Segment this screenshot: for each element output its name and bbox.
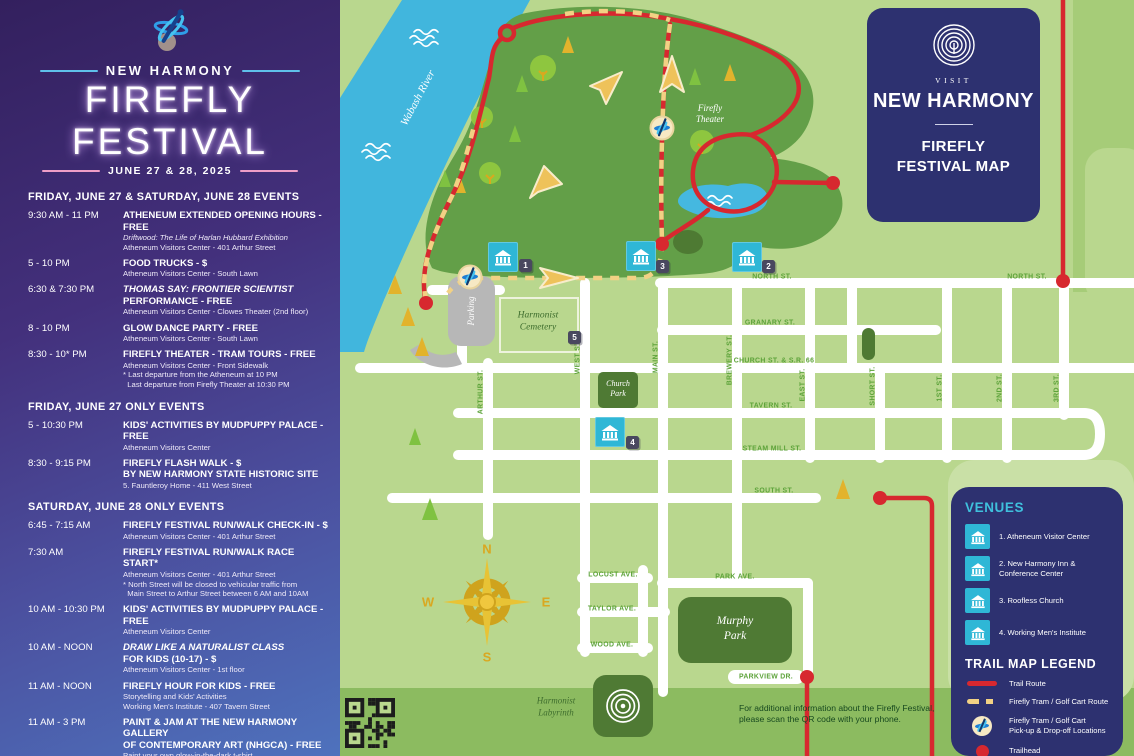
event-body: FIREFLY THEATER - TRAM TOURS - FREEAthen… <box>123 349 330 389</box>
festival-map: NORTH ST.NORTH ST.GRANARY ST.CHURCH ST. … <box>340 0 1134 756</box>
event-time: 8:30 - 9:15 PM <box>28 458 123 491</box>
visit-new-harmony-badge: VISIT NEW HARMONY FIREFLY FESTIVAL MAP <box>867 8 1040 222</box>
venue-list-item: 4. Working Men's Institute <box>965 620 1109 645</box>
legend-label-line: Firefly Tram / Golf Cart <box>1009 716 1106 726</box>
venue-list-label: 2. New Harmony Inn & Conference Center <box>999 559 1109 579</box>
street-label-2nd-st-: 2ND ST. <box>997 374 1004 402</box>
event-body: FIREFLY HOUR FOR KIDS - FREEStorytelling… <box>123 681 330 712</box>
street-label-tavern-st-: TAVERN ST. <box>750 403 793 410</box>
event-body: FIREFLY FESTIVAL RUN/WALK RACE START*Ath… <box>123 547 330 599</box>
event-detail: Atheneum Visitors Center <box>123 443 330 453</box>
event-detail: Paint your own glow-in-the-dark t-shirt <box>123 751 330 756</box>
divider <box>42 170 100 172</box>
legend-trail-icon <box>965 681 999 686</box>
event-time: 9:30 AM - 11 PM <box>28 210 123 252</box>
murphy-park-label: MurphyPark <box>717 614 753 644</box>
venue-list-item: 1. Atheneum Visitor Center <box>965 524 1109 549</box>
event-time: 8 - 10 PM <box>28 323 123 344</box>
venues-legend-panel: VENUES 1. Atheneum Visitor Center2. New … <box>951 487 1123 756</box>
event-row: 11 AM - NOONFIREFLY HOUR FOR KIDS - FREE… <box>28 681 330 712</box>
event-title: GLOW DANCE PARTY - FREE <box>123 323 330 335</box>
street-label-3rd-st-: 3RD ST. <box>1054 374 1061 402</box>
trailhead-swatch <box>976 745 989 756</box>
venue-1-icon <box>488 242 518 272</box>
venue-4-icon <box>595 417 625 447</box>
event-row: 6:45 - 7:15 AMFIREFLY FESTIVAL RUN/WALK … <box>28 520 330 541</box>
legend-label-line: Trail Route <box>1009 679 1046 689</box>
event-detail: Atheneum Visitors Center - 401 Arthur St… <box>123 243 330 253</box>
qr-instructions: For additional information about the Fir… <box>739 703 939 725</box>
firefly-theater-label: FireflyTheater <box>696 103 724 126</box>
legend-label: Trail Route <box>1009 679 1046 689</box>
venue-building-icon <box>965 588 990 613</box>
legend-item-tram: Firefly Tram / Golf Cart Route <box>965 697 1109 707</box>
legend-label-line: Trailhead <box>1009 746 1040 756</box>
event-row: 5 - 10 PMFOOD TRUCKS - $Atheneum Visitor… <box>28 258 330 279</box>
event-time: 5 - 10:30 PM <box>28 420 123 453</box>
festival-logo: NEW HARMONY FIREFLY FESTIVAL JUNE 27 & 2… <box>0 0 340 177</box>
street-label-east-st-: EAST ST. <box>800 368 807 401</box>
venue-3-icon <box>626 241 656 271</box>
venue-building-icon <box>965 556 990 581</box>
venue-number-badge: 2 <box>762 260 775 273</box>
event-row: 7:30 AMFIREFLY FESTIVAL RUN/WALK RACE ST… <box>28 547 330 599</box>
event-title: FIREFLY FLASH WALK - $ <box>123 458 330 470</box>
event-detail: Atheneum Visitors Center - Clowes Theate… <box>123 307 330 317</box>
event-row: 6:30 & 7:30 PMTHOMAS SAY: FRONTIER SCIEN… <box>28 284 330 317</box>
event-time: 6:45 - 7:15 AM <box>28 520 123 541</box>
legend-item-pickup: Firefly Tram / Golf CartPick-up & Drop-o… <box>965 715 1109 737</box>
event-title: FOR KIDS (10-17) - $ <box>123 654 330 666</box>
event-row: 8 - 10 PMGLOW DANCE PARTY - FREEAtheneum… <box>28 323 330 344</box>
street-label-locust-ave-: LOCUST AVE. <box>588 572 637 579</box>
event-detail: Working Men's Institute - 407 Tavern Str… <box>123 702 330 712</box>
street-label-south-st-: SOUTH ST. <box>754 488 793 495</box>
legend-item-trailhead: Trailhead <box>965 745 1109 756</box>
event-body: GLOW DANCE PARTY - FREEAtheneum Visitors… <box>123 323 330 344</box>
street-label-arthur-st-: ARTHUR ST. <box>478 370 485 414</box>
event-detail: Main Street to Arthur Street between 6 A… <box>123 589 330 599</box>
venue-number-badge: 3 <box>656 260 669 273</box>
event-detail: * Last departure from the Atheneum at 10… <box>123 370 330 380</box>
event-body: THOMAS SAY: FRONTIER SCIENTISTPERFORMANC… <box>123 284 330 317</box>
event-row: 8:30 - 9:15 PMFIREFLY FLASH WALK - $BY N… <box>28 458 330 491</box>
compass-e: E <box>542 595 551 610</box>
legend-pickup-icon <box>965 715 999 737</box>
event-body: FOOD TRUCKS - $Atheneum Visitors Center … <box>123 258 330 279</box>
venue-list-label: 1. Atheneum Visitor Center <box>999 532 1090 542</box>
event-title: FIREFLY FESTIVAL RUN/WALK RACE START* <box>123 547 330 570</box>
divider <box>935 124 973 125</box>
street-label-north-st-: NORTH ST. <box>752 274 792 281</box>
street-label-1st-st-: 1ST ST. <box>937 375 944 402</box>
legend-heading: TRAIL MAP LEGEND <box>965 657 1109 671</box>
street-label-wood-ave-: WOOD AVE. <box>591 642 634 649</box>
event-detail: Atheneum Visitors Center - South Lawn <box>123 334 330 344</box>
venues-heading: VENUES <box>965 500 1109 515</box>
event-title: FIREFLY FESTIVAL RUN/WALK CHECK-IN - $ <box>123 520 330 532</box>
parkview-drive-label: PARKVIEW DR. <box>739 674 793 681</box>
event-row: 11 AM - 3 PMPAINT & JAM AT THE NEW HARMO… <box>28 717 330 756</box>
trail-route-swatch <box>967 681 997 686</box>
venue-number-badge: 1 <box>519 259 532 272</box>
venue-list-item: 2. New Harmony Inn & Conference Center <box>965 556 1109 581</box>
event-title: FIREFLY HOUR FOR KIDS - FREE <box>123 681 330 693</box>
event-title: FOOD TRUCKS - $ <box>123 258 330 270</box>
event-detail: Atheneum Visitors Center - 401 Arthur St… <box>123 570 330 580</box>
venue-number-badge: 4 <box>626 436 639 449</box>
event-body: ATHENEUM EXTENDED OPENING HOURS - FREEDr… <box>123 210 330 252</box>
events-sidebar: NEW HARMONY FIREFLY FESTIVAL JUNE 27 & 2… <box>0 0 340 756</box>
legend-label-line: Firefly Tram / Golf Cart Route <box>1009 697 1108 707</box>
event-row: 8:30 - 10* PMFIREFLY THEATER - TRAM TOUR… <box>28 349 330 389</box>
event-detail: Storytelling and Kids' Activities <box>123 692 330 702</box>
event-title: PAINT & JAM AT THE NEW HARMONY GALLERY <box>123 717 330 740</box>
street-label-west-st-: WEST ST. <box>575 340 582 375</box>
venue-list-label: 4. Working Men's Institute <box>999 628 1086 638</box>
compass-s: S <box>483 650 492 665</box>
street-label-brewery-st-: BREWERY ST. <box>727 335 734 386</box>
event-body: FIREFLY FESTIVAL RUN/WALK CHECK-IN - $At… <box>123 520 330 541</box>
legend-tram-icon <box>965 699 999 704</box>
street-label-taylor-ave-: TAYLOR AVE. <box>588 606 636 613</box>
divider <box>40 70 98 72</box>
event-detail: Last departure from Firefly Theater at 1… <box>123 380 330 390</box>
event-row: 9:30 AM - 11 PMATHENEUM EXTENDED OPENING… <box>28 210 330 252</box>
event-body: KIDS' ACTIVITIES BY MUDPUPPY PALACE - FR… <box>123 420 330 453</box>
divider <box>242 70 300 72</box>
event-time: 5 - 10 PM <box>28 258 123 279</box>
event-body: FIREFLY FLASH WALK - $BY NEW HARMONY STA… <box>123 458 330 491</box>
street-label-granary-st-: GRANARY ST. <box>745 320 795 327</box>
events-section: FRIDAY, JUNE 27 ONLY EVENTS5 - 10:30 PMK… <box>28 401 330 491</box>
event-time: 6:30 & 7:30 PM <box>28 284 123 317</box>
event-detail: Atheneum Visitors Center - 401 Arthur St… <box>123 532 330 542</box>
event-detail: Atheneum Visitors Center <box>123 627 330 637</box>
event-time: 8:30 - 10* PM <box>28 349 123 389</box>
street-label-short-st-: SHORT ST. <box>870 366 877 405</box>
event-title: DRAW LIKE A NATURALIST CLASS <box>123 642 330 654</box>
venue-2-icon <box>732 242 762 272</box>
legend-item-trail: Trail Route <box>965 679 1109 689</box>
event-detail: Atheneum Visitors Center - 1st floor <box>123 665 330 675</box>
event-title: KIDS' ACTIVITIES BY MUDPUPPY PALACE - FR… <box>123 420 330 443</box>
event-detail: Driftwood: The Life of Harlan Hubbard Ex… <box>123 233 330 243</box>
street-label-park-ave-: PARK AVE. <box>715 574 754 581</box>
event-detail: * North Street will be closed to vehicul… <box>123 580 330 590</box>
event-time: 11 AM - NOON <box>28 681 123 712</box>
badge-name-label: NEW HARMONY <box>873 90 1034 113</box>
event-title: KIDS' ACTIVITIES BY MUDPUPPY PALACE - FR… <box>123 604 330 627</box>
harmonist-labyrinth-area <box>593 675 653 737</box>
event-time: 10 AM - NOON <box>28 642 123 675</box>
logo-date: JUNE 27 & 28, 2025 <box>108 165 232 177</box>
tram-route-swatch <box>967 699 997 704</box>
badge-subtitle: FIREFLY FESTIVAL MAP <box>889 137 1019 178</box>
divider <box>240 170 298 172</box>
event-title: ATHENEUM EXTENDED OPENING HOURS - FREE <box>123 210 330 233</box>
street-label-steam-mill-st-: STEAM MILL ST. <box>743 446 802 453</box>
venue-building-icon <box>965 620 990 645</box>
venue-list-label: 3. Roofless Church <box>999 596 1064 606</box>
event-title: FIREFLY THEATER - TRAM TOURS - FREE <box>123 349 330 361</box>
event-detail: Atheneum Visitors Center - South Lawn <box>123 269 330 279</box>
event-row: 10 AM - NOONDRAW LIKE A NATURALIST CLASS… <box>28 642 330 675</box>
church-park-label: ChurchPark <box>606 379 630 399</box>
logo-title: FIREFLY FESTIVAL <box>0 79 340 163</box>
harmonist-cemetery-label: HarmonistCemetery <box>518 310 559 335</box>
compass-n: N <box>482 542 491 557</box>
street-label-main-st-: MAIN ST. <box>653 341 660 373</box>
event-body: PAINT & JAM AT THE NEW HARMONY GALLERYOF… <box>123 717 330 756</box>
event-title: OF CONTEMPORARY ART (NHGCA) - FREE <box>123 740 330 752</box>
event-time: 11 AM - 3 PM <box>28 717 123 756</box>
event-row: 5 - 10:30 PMKIDS' ACTIVITIES BY MUDPUPPY… <box>28 420 330 453</box>
legend-label: Trailhead <box>1009 746 1040 756</box>
event-row: 10 AM - 10:30 PMKIDS' ACTIVITIES BY MUDP… <box>28 604 330 637</box>
harmonist-labyrinth-label: HarmonistLabyrinth <box>537 695 576 718</box>
events-section: SATURDAY, JUNE 28 ONLY EVENTS6:45 - 7:15… <box>28 501 330 756</box>
street-label-church-st-s-r-66: CHURCH ST. & S.R. 66 <box>734 358 815 365</box>
venue-list-item: 3. Roofless Church <box>965 588 1109 613</box>
section-heading: SATURDAY, JUNE 28 ONLY EVENTS <box>28 501 330 513</box>
venue-number-badge: 5 <box>568 331 581 344</box>
logo-city: NEW HARMONY <box>106 63 235 78</box>
event-title: THOMAS SAY: FRONTIER SCIENTIST <box>123 284 330 296</box>
legend-label: Firefly Tram / Golf Cart Route <box>1009 697 1108 707</box>
events-section: FRIDAY, JUNE 27 & SATURDAY, JUNE 28 EVEN… <box>28 191 330 390</box>
events-schedule: FRIDAY, JUNE 27 & SATURDAY, JUNE 28 EVEN… <box>0 177 340 756</box>
parking-label: Parking <box>466 297 476 326</box>
event-body: KIDS' ACTIVITIES BY MUDPUPPY PALACE - FR… <box>123 604 330 637</box>
event-body: DRAW LIKE A NATURALIST CLASSFOR KIDS (10… <box>123 642 330 675</box>
event-title: BY NEW HARMONY STATE HISTORIC SITE <box>123 469 330 481</box>
event-detail: Atheneum Visitors Center - Front Sidewal… <box>123 361 330 371</box>
street-label-north-st-: NORTH ST. <box>1007 274 1047 281</box>
event-title: PERFORMANCE - FREE <box>123 296 330 308</box>
venue-building-icon <box>965 524 990 549</box>
event-time: 10 AM - 10:30 PM <box>28 604 123 637</box>
labyrinth-icon <box>931 22 977 68</box>
legend-label: Firefly Tram / Golf CartPick-up & Drop-o… <box>1009 716 1106 736</box>
event-detail: 5. Fauntleroy Home - 411 West Street <box>123 481 330 491</box>
section-heading: FRIDAY, JUNE 27 ONLY EVENTS <box>28 401 330 413</box>
event-time: 7:30 AM <box>28 547 123 599</box>
bush <box>862 328 875 360</box>
legend-trailhead-icon <box>965 745 999 756</box>
firefly-festival-poster: NEW HARMONY FIREFLY FESTIVAL JUNE 27 & 2… <box>0 0 1134 756</box>
legend-label-line: Pick-up & Drop-off Locations <box>1009 726 1106 736</box>
badge-visit-label: VISIT <box>935 76 972 85</box>
firefly-logo-icon <box>131 4 209 56</box>
section-heading: FRIDAY, JUNE 27 & SATURDAY, JUNE 28 EVEN… <box>28 191 330 203</box>
compass-w: W <box>422 595 434 610</box>
